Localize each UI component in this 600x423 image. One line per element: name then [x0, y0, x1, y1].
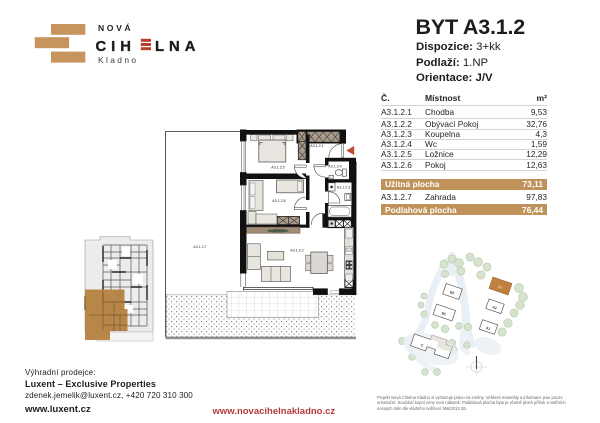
svg-text:A3.1.2.3: A3.1.2.3 — [337, 185, 350, 189]
svg-text:A3.1.2.4: A3.1.2.4 — [328, 165, 341, 169]
svg-text:A3.1.2.7: A3.1.2.7 — [193, 245, 206, 249]
svg-text:A3.1.2.1: A3.1.2.1 — [310, 144, 323, 148]
svg-text:A3.1.2.6: A3.1.2.6 — [272, 199, 285, 203]
svg-text:A3.1.2.2: A3.1.2.2 — [290, 249, 303, 253]
svg-text:A3.1.2.5: A3.1.2.5 — [271, 166, 284, 170]
